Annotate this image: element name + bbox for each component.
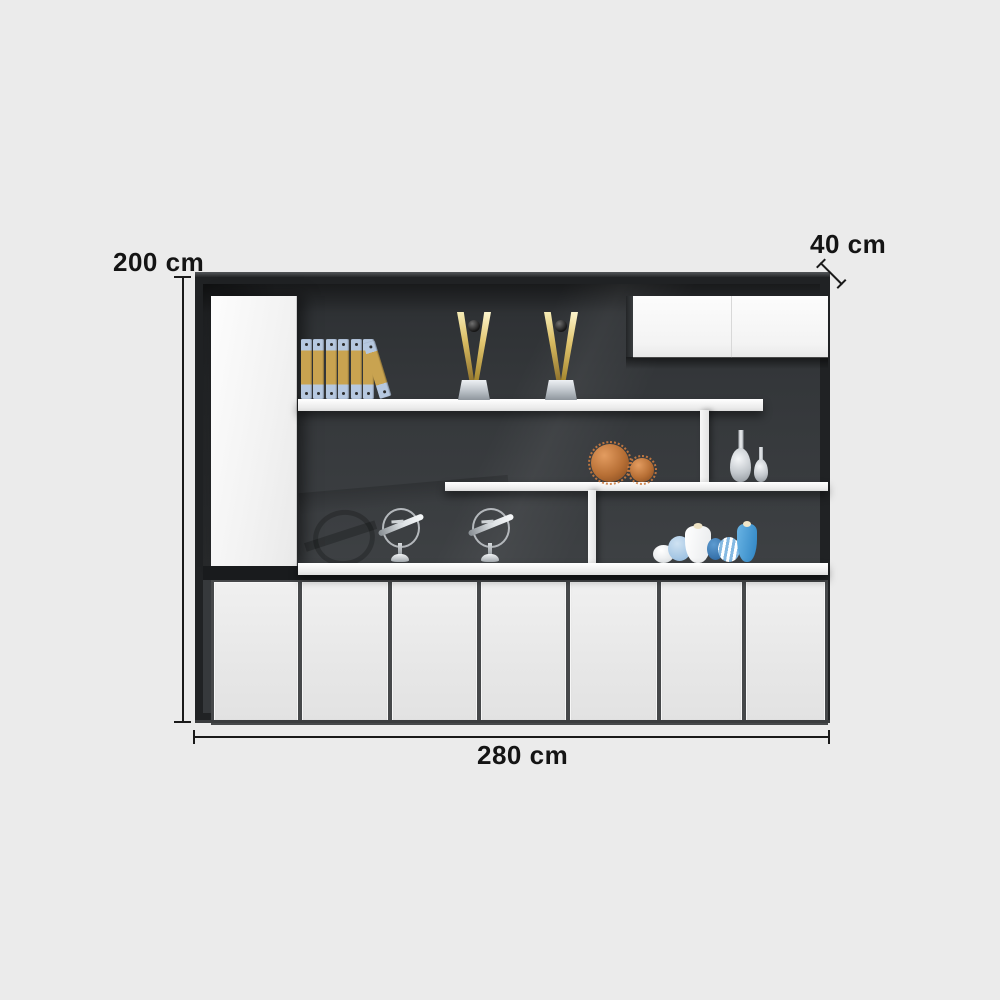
upper-wall-cabinet bbox=[626, 296, 828, 357]
trophy bbox=[541, 312, 581, 400]
upper-shelf bbox=[298, 399, 763, 411]
trophy-orb bbox=[468, 320, 480, 332]
blue-decor-group bbox=[653, 524, 757, 563]
width-dimension-tick bbox=[193, 730, 195, 744]
lower-cabinet-door bbox=[746, 582, 825, 723]
wall-cabinet-door-right bbox=[732, 296, 828, 358]
height-dimension-tick bbox=[174, 276, 191, 278]
cabinet-top-edge bbox=[195, 272, 830, 277]
trophy-orb bbox=[555, 320, 567, 332]
lower-cabinet-door bbox=[570, 582, 657, 723]
vase-bulb bbox=[754, 459, 768, 482]
trophy-base bbox=[545, 380, 577, 400]
binder bbox=[301, 339, 312, 399]
trophy-base bbox=[458, 380, 490, 400]
lower-cabinet-door bbox=[481, 582, 566, 723]
trophy bbox=[454, 312, 494, 400]
lower-cabinet-door bbox=[214, 582, 298, 723]
display-cabinet bbox=[195, 272, 830, 723]
product-dimension-diagram: 200 cm 40 cm 280 cm bbox=[0, 0, 1000, 1000]
height-dimension-label: 200 cm bbox=[113, 247, 204, 278]
wall-cabinet-door-left bbox=[633, 296, 732, 358]
airplane-model bbox=[471, 508, 511, 564]
shelf-divider-upper bbox=[700, 410, 709, 482]
vase-bulb bbox=[730, 448, 751, 482]
airplane-model bbox=[381, 508, 421, 564]
binder bbox=[338, 339, 349, 399]
height-dimension-line bbox=[182, 277, 184, 723]
lower-door-row bbox=[211, 580, 828, 725]
lower-cabinet-door bbox=[302, 582, 388, 723]
wall-cabinet-shadow bbox=[626, 357, 828, 369]
width-dimension-tick bbox=[828, 730, 830, 744]
silver-vase-short bbox=[754, 447, 768, 482]
width-dimension-line bbox=[194, 736, 830, 738]
lower-cabinet-door bbox=[661, 582, 742, 723]
silver-vase-tall bbox=[730, 430, 751, 482]
spike-decor-ball-large bbox=[591, 444, 629, 482]
lower-cabinet-door bbox=[392, 582, 477, 723]
middle-shelf bbox=[445, 482, 828, 491]
blue-faceted-vase bbox=[737, 524, 757, 562]
spike-decor-ball-small bbox=[630, 458, 654, 482]
left-tall-door bbox=[211, 296, 297, 567]
airplane-stand-base bbox=[481, 554, 499, 562]
width-dimension-label: 280 cm bbox=[477, 740, 568, 771]
wall-cabinet-side-face bbox=[626, 296, 633, 357]
cabinet-interior bbox=[203, 284, 820, 713]
cabinet-bottom-edge bbox=[195, 720, 830, 723]
counter-top bbox=[298, 563, 828, 575]
binder bbox=[326, 339, 337, 399]
binder bbox=[351, 339, 362, 399]
binder bbox=[313, 339, 324, 399]
airplane-stand-base bbox=[391, 554, 409, 562]
height-dimension-tick bbox=[174, 721, 191, 723]
depth-dimension-label: 40 cm bbox=[810, 229, 886, 260]
shelf-divider-lower bbox=[588, 490, 596, 565]
